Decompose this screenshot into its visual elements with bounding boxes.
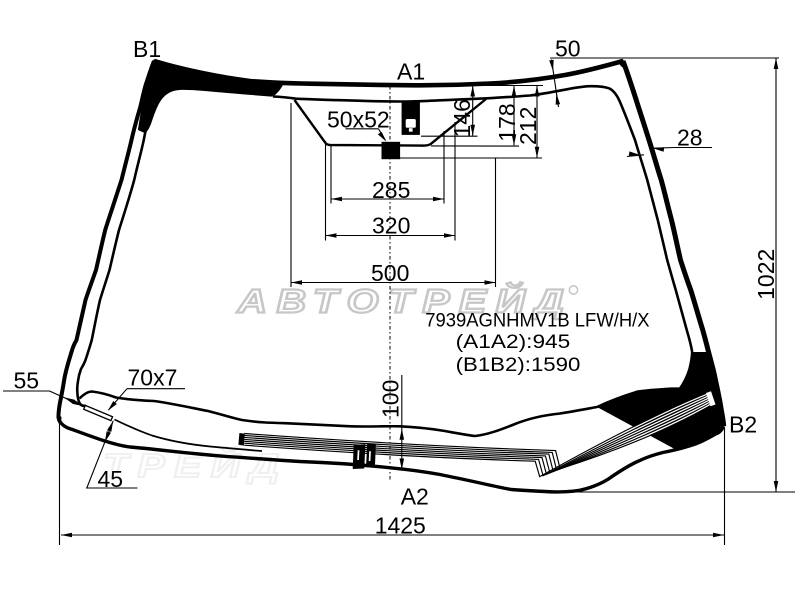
svg-text:1425: 1425 (375, 513, 426, 539)
svg-text:(A1A2):945: (A1A2):945 (456, 331, 571, 353)
svg-text:146: 146 (449, 99, 475, 137)
svg-text:A2: A2 (401, 484, 429, 510)
svg-text:50x52: 50x52 (327, 107, 390, 133)
svg-text:7939AGNHMV1B LFW/H/X: 7939AGNHMV1B LFW/H/X (425, 309, 649, 331)
svg-text:70x7: 70x7 (128, 365, 178, 391)
svg-text:28: 28 (677, 125, 703, 151)
svg-text:55: 55 (14, 368, 40, 394)
svg-text:45: 45 (98, 466, 124, 492)
svg-text:B1: B1 (133, 36, 161, 62)
svg-text:100: 100 (378, 380, 404, 418)
svg-text:1022: 1022 (753, 249, 779, 300)
svg-text:320: 320 (372, 213, 410, 239)
svg-text:(B1B2):1590: (B1B2):1590 (456, 354, 581, 376)
svg-text:A1: A1 (397, 59, 425, 85)
svg-text:500: 500 (371, 260, 409, 286)
svg-text:285: 285 (372, 177, 410, 203)
svg-text:B2: B2 (729, 412, 757, 438)
svg-text:50: 50 (555, 36, 581, 62)
svg-text:212: 212 (515, 107, 541, 145)
